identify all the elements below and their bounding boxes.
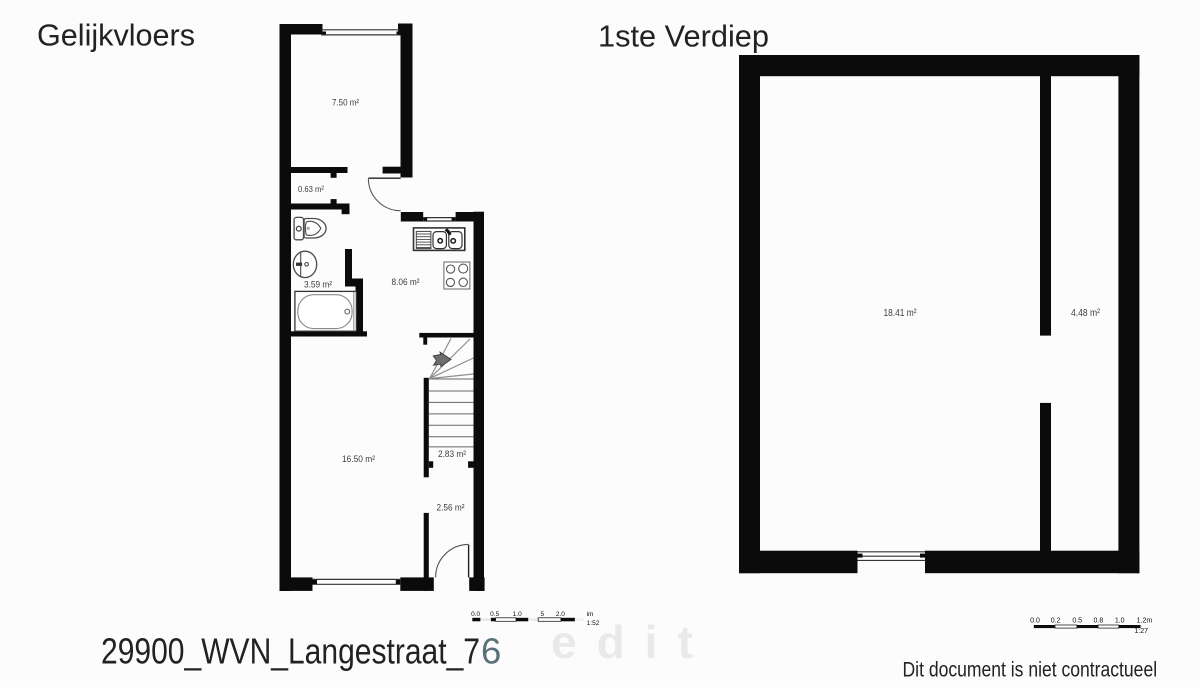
svg-text:1:52: 1:52 [587, 620, 600, 627]
svg-text:8.06 m²: 8.06 m² [392, 277, 420, 288]
svg-text:1.0: 1.0 [1115, 618, 1125, 625]
svg-text:1:27: 1:27 [1134, 628, 1148, 635]
svg-text:3.59 m²: 3.59 m² [304, 279, 332, 290]
svg-text:im: im [587, 611, 594, 618]
svg-text:0.0: 0.0 [471, 611, 480, 618]
svg-text:1.0: 1.0 [513, 611, 522, 618]
svg-text:7.50 m²: 7.50 m² [332, 97, 359, 108]
svg-text:Dit document is niet contractu: Dit document is niet contractueel [903, 659, 1158, 682]
svg-text:1.2m: 1.2m [1137, 618, 1153, 625]
svg-text:0.0: 0.0 [1030, 618, 1040, 625]
svg-text:18.41 m²: 18.41 m² [884, 308, 918, 319]
svg-text:29900_WVN_Langestraat_7: 29900_WVN_Langestraat_7 [101, 630, 480, 671]
svg-text:2.0: 2.0 [556, 611, 565, 618]
svg-text:0.8: 0.8 [1094, 618, 1104, 625]
svg-text:1ste Verdiep: 1ste Verdiep [598, 19, 769, 54]
svg-text:6: 6 [481, 630, 501, 671]
svg-text:5: 5 [540, 611, 544, 618]
svg-text:0.5: 0.5 [490, 611, 499, 618]
svg-text:2.56 m²: 2.56 m² [437, 502, 465, 513]
svg-text:Gelijkvloers: Gelijkvloers [37, 18, 195, 53]
svg-text:edit: edit [551, 616, 713, 668]
svg-text:4.48 m²: 4.48 m² [1071, 308, 1101, 319]
svg-text:0.2: 0.2 [1051, 618, 1061, 625]
svg-text:0.5: 0.5 [1072, 618, 1082, 625]
svg-text:2.83 m²: 2.83 m² [438, 449, 466, 460]
svg-text:16.50 m²: 16.50 m² [342, 454, 375, 465]
svg-text:0.63 m²: 0.63 m² [298, 184, 324, 194]
